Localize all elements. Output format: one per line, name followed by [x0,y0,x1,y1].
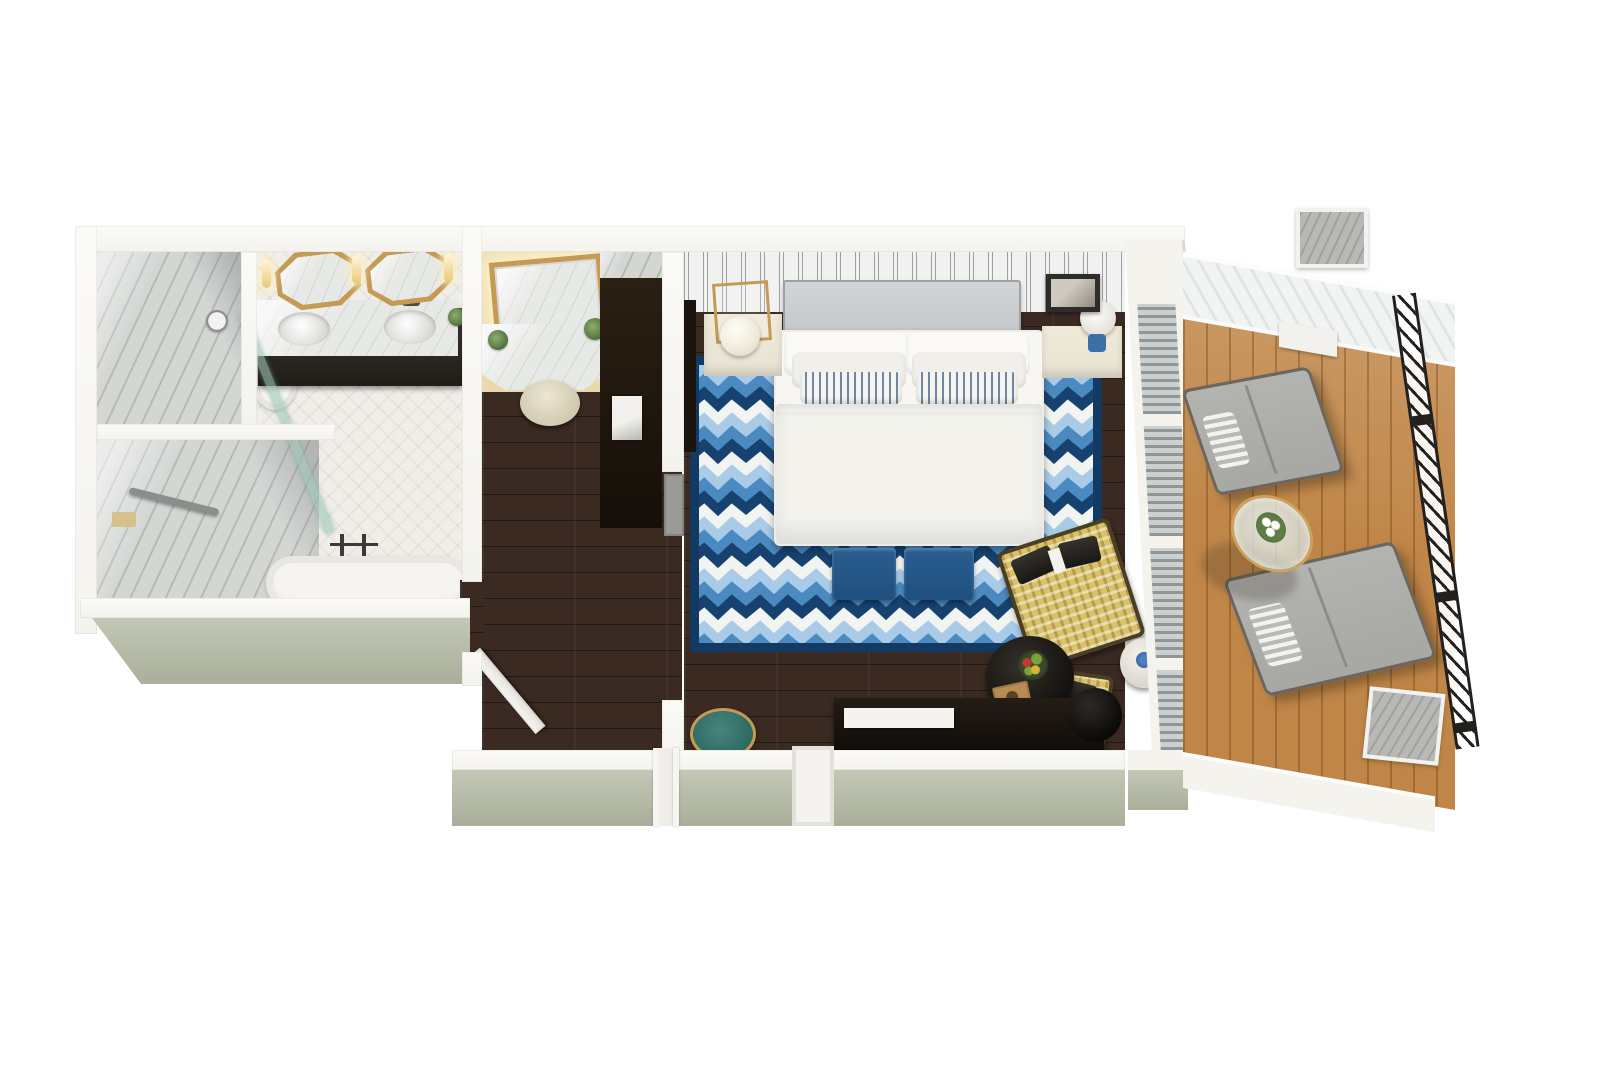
accent-pillow-right [916,372,1018,404]
entry-door-recess [792,746,834,826]
wc-divider-horizontal [97,424,335,440]
chaise-bottom-pillow [1247,602,1304,668]
concrete-pillar-bottom [1362,686,1445,766]
bathroom-door-stub [462,652,482,686]
nightstand-right [1042,326,1122,378]
bathroom-bottom-wall [80,598,470,618]
window-louver-panel-2 [1144,426,1188,536]
window-wall-exterior [1128,770,1188,810]
top-exterior-wall [75,226,1185,252]
bedroom-left-wall [662,252,684,472]
counter-plant-left [488,330,508,350]
round-planter [1068,688,1122,742]
white-flowers [1256,510,1286,545]
table-lamp-right-base [1088,334,1106,352]
chaise-top-pillow [1201,411,1251,469]
entry-door-panel [659,748,673,826]
bottom-wall-bedroom-segment [675,750,1125,770]
vanity-stool [520,380,580,426]
entry-jamb-right [673,748,679,826]
wc-divider-vertical [241,252,257,428]
foot-ottoman-left [832,548,896,600]
tub-faucet [330,534,378,556]
closet-art-sheet [612,396,642,440]
wardrobe-face-strip [684,300,696,452]
concrete-pillar-top [1296,208,1368,268]
fruit-bowl [1018,650,1048,680]
floor-plan-scene [0,0,1618,1080]
sconce-light-2 [352,256,361,284]
vanity-mirror-left-glass [278,251,357,308]
console-tray [844,708,954,728]
chaise-bottom-seam [1308,567,1348,667]
vanity-sink-right [384,310,436,344]
bathroom-exterior-face [92,618,470,684]
luggage-rack [664,474,684,536]
sconce-light-1 [262,260,271,288]
railing-crossbar-1 [1410,414,1433,427]
magnifying-mirror [206,310,228,332]
bottom-exterior-face [452,770,1125,826]
accent-pillow-left [800,372,902,404]
vanity-mirror-right-glass [368,249,447,304]
caged-lamp-globe [720,316,760,356]
bed-duvet [776,404,1042,544]
framed-art [1046,274,1100,312]
framed-art-print [1051,279,1095,307]
shower-soap-shelf [112,512,136,527]
foot-ottoman-right [904,548,974,600]
window-wall-bottom [1128,750,1188,770]
left-exterior-wall [75,226,97,634]
bathroom-right-wall [462,226,482,582]
bottom-wall-hall-segment [452,750,657,770]
sconce-light-3 [444,254,453,282]
window-louver-panel-1 [1137,304,1181,414]
railing-crossbar-2 [1435,590,1458,603]
vanity-sink-left [278,312,330,346]
railing-crossbar-3 [1453,721,1476,734]
water-closet-room [97,252,241,424]
